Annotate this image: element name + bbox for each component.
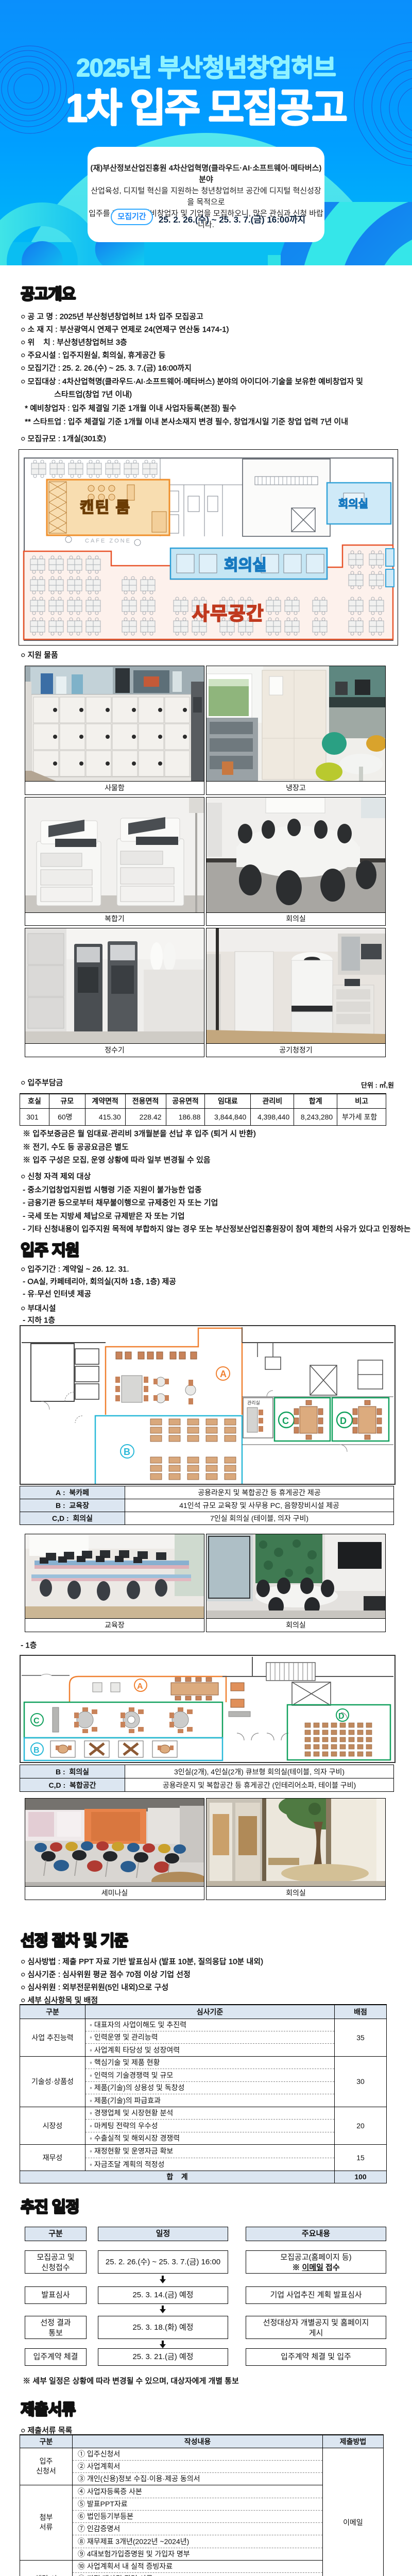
svg-text:D: D — [338, 1712, 345, 1721]
svg-text:관리실: 관리실 — [247, 1400, 260, 1405]
svg-text:A: A — [220, 1369, 227, 1379]
svg-text:D: D — [340, 1416, 347, 1426]
svg-text:회의실: 회의실 — [338, 498, 368, 510]
svg-text:회의실: 회의실 — [224, 557, 267, 574]
svg-text:A: A — [137, 1682, 143, 1691]
svg-text:B: B — [124, 1447, 130, 1457]
svg-text:캔틴 룸: 캔틴 룸 — [80, 499, 131, 516]
svg-text:사무공간: 사무공간 — [192, 603, 264, 624]
svg-text:C: C — [33, 1717, 40, 1725]
svg-text:CAFE ZONE: CAFE ZONE — [85, 538, 131, 544]
svg-text:B: B — [33, 1746, 40, 1755]
svg-text:C: C — [282, 1416, 289, 1426]
